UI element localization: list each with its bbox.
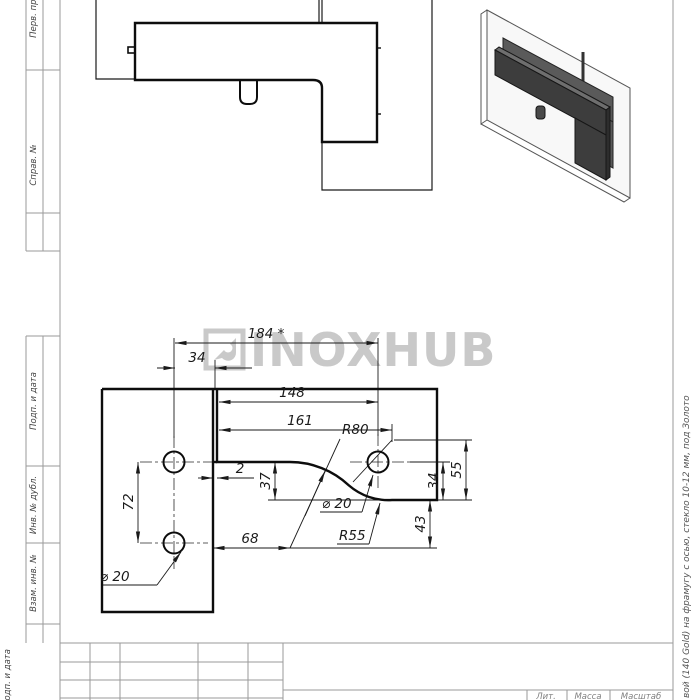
dim-2: 2 bbox=[236, 461, 245, 477]
dim-34-right: 34 bbox=[426, 472, 442, 489]
margin-label-podp-i-data: Подп. и дата bbox=[29, 372, 39, 430]
dim-34-top: 34 bbox=[188, 350, 205, 366]
title-block-masshtab-label: Масштаб bbox=[621, 692, 661, 700]
watermark-text: INOXHUB bbox=[250, 323, 496, 377]
dim-184: 184 * bbox=[248, 326, 285, 342]
fitting-outline-plan bbox=[128, 23, 381, 142]
dim-r80: R80 bbox=[342, 422, 369, 438]
part-outline bbox=[102, 389, 437, 612]
title-block-lit-label: Лит. bbox=[535, 692, 556, 700]
dim-68: 68 bbox=[241, 531, 258, 547]
dimension-lines bbox=[103, 343, 466, 585]
iso-view bbox=[481, 10, 630, 202]
margin-label-vzam-inv-no: Взам. инв. № bbox=[29, 554, 39, 612]
drawing-canvas: INOXHUB Перв. примен. Справ. № Подп. и д… bbox=[0, 0, 700, 700]
inoxhub-logo-icon bbox=[206, 331, 243, 368]
top-view bbox=[96, 0, 432, 190]
dim-72: 72 bbox=[121, 493, 137, 510]
dim-43: 43 bbox=[413, 515, 429, 532]
dim-148: 148 bbox=[279, 385, 305, 401]
margin-label-podp-i-data-bottom: Подп. и дата bbox=[3, 649, 13, 700]
dim-dia20-right: ⌀ 20 bbox=[322, 496, 352, 512]
dim-55: 55 bbox=[449, 461, 465, 478]
margin-label-sprav-no: Справ. № bbox=[29, 144, 39, 186]
margin-label-perv-primen: Перв. примен. bbox=[29, 0, 39, 38]
drawing-sheet: INOXHUB Перв. примен. Справ. № Подп. и д… bbox=[0, 0, 700, 700]
iso-pin bbox=[536, 106, 545, 119]
dim-37: 37 bbox=[258, 472, 274, 490]
dim-161: 161 bbox=[287, 413, 313, 429]
dim-dia20-left: ⌀ 20 bbox=[100, 569, 130, 585]
title-block-massa-label: Масса bbox=[574, 692, 601, 700]
margin-label-inv-no-dubl: Инв. № дубл. bbox=[29, 476, 39, 534]
dim-r55: R55 bbox=[339, 528, 366, 544]
glass-edges bbox=[96, 0, 432, 190]
title-block-labels: Лит. Масса Масштаб bbox=[535, 692, 661, 700]
part-description-vertical: вой (140 Gold) на фрамугу с осью, стекло… bbox=[682, 395, 692, 698]
left-margin-labels: Перв. примен. Справ. № Подп. и дата Инв.… bbox=[3, 0, 39, 700]
